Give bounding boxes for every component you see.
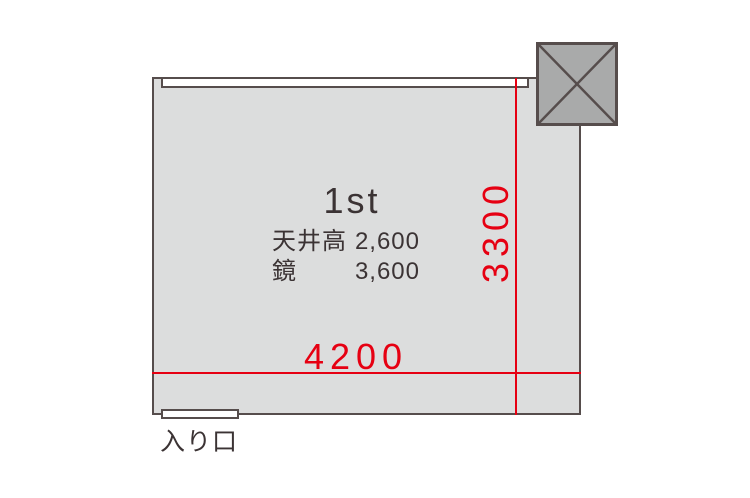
depth-dimension-label: 3300 xyxy=(479,171,513,291)
mirror-bar xyxy=(161,77,529,88)
spec-value: 2,600 xyxy=(348,227,420,257)
entrance-label: 入り口 xyxy=(160,422,238,458)
spec-row-mirror: 鏡 3,600 xyxy=(272,257,420,287)
column-box xyxy=(536,42,618,126)
spec-row-ceiling-height: 天井高 2,600 xyxy=(272,227,420,257)
column-x-icon xyxy=(539,45,615,123)
floorplan-canvas: 1st 天井高 2,600 鏡 3,600 4200 3300 入り口 xyxy=(0,0,750,498)
spec-value: 3,600 xyxy=(348,257,420,287)
width-dimension-label: 4200 xyxy=(286,336,426,378)
room-name: 1st xyxy=(282,180,422,222)
spec-label: 天井高 xyxy=(272,227,348,257)
spec-label: 鏡 xyxy=(272,257,348,287)
entrance-opening xyxy=(161,409,239,419)
room-specs: 天井高 2,600 鏡 3,600 xyxy=(272,227,420,287)
